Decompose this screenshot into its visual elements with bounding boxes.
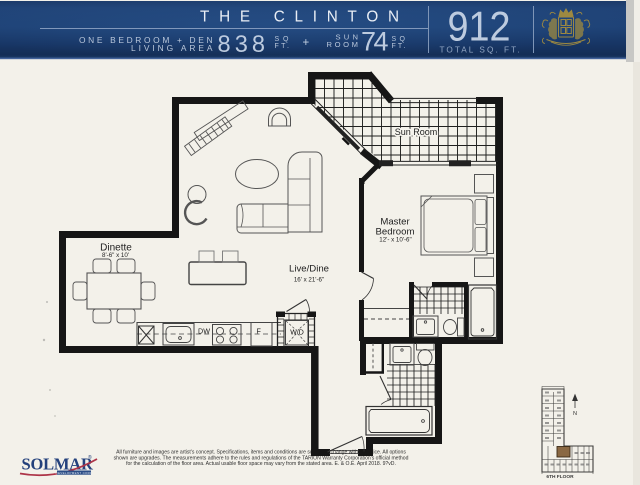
svg-text:Live/Dine: Live/Dine xyxy=(289,264,329,275)
svg-text:DW: DW xyxy=(198,327,210,336)
svg-text:12'- x 10'-6": 12'- x 10'-6" xyxy=(379,237,411,244)
svg-text:8'-6" x 10': 8'-6" x 10' xyxy=(102,252,129,259)
svg-text:TOTAL SQ. FT.: TOTAL SQ. FT. xyxy=(440,46,520,55)
svg-text:N: N xyxy=(573,411,577,417)
svg-text:DEVELOPMENT CORP: DEVELOPMENT CORP xyxy=(56,471,93,475)
svg-text:+: + xyxy=(303,37,310,49)
svg-text:for the calculation of the flo: for the calculation of the floor area. A… xyxy=(126,461,396,467)
svg-text:6TH FLOOR: 6TH FLOOR xyxy=(546,474,574,480)
svg-text:LIVING AREA: LIVING AREA xyxy=(131,43,213,53)
svg-text:Sun Room: Sun Room xyxy=(395,127,438,137)
svg-text:ROOM: ROOM xyxy=(327,40,359,49)
svg-text:838: 838 xyxy=(218,32,266,58)
svg-text:W/D: W/D xyxy=(290,330,304,337)
svg-text:THE CLINTON: THE CLINTON xyxy=(200,9,408,26)
svg-text:FT.: FT. xyxy=(392,43,406,50)
svg-text:®: ® xyxy=(88,454,92,461)
svg-text:912: 912 xyxy=(448,3,511,50)
svg-text:74: 74 xyxy=(361,27,389,57)
svg-text:FT.: FT. xyxy=(275,43,290,50)
svg-text:16' x 21'-6": 16' x 21'-6" xyxy=(294,277,324,284)
svg-text:F: F xyxy=(257,327,262,336)
